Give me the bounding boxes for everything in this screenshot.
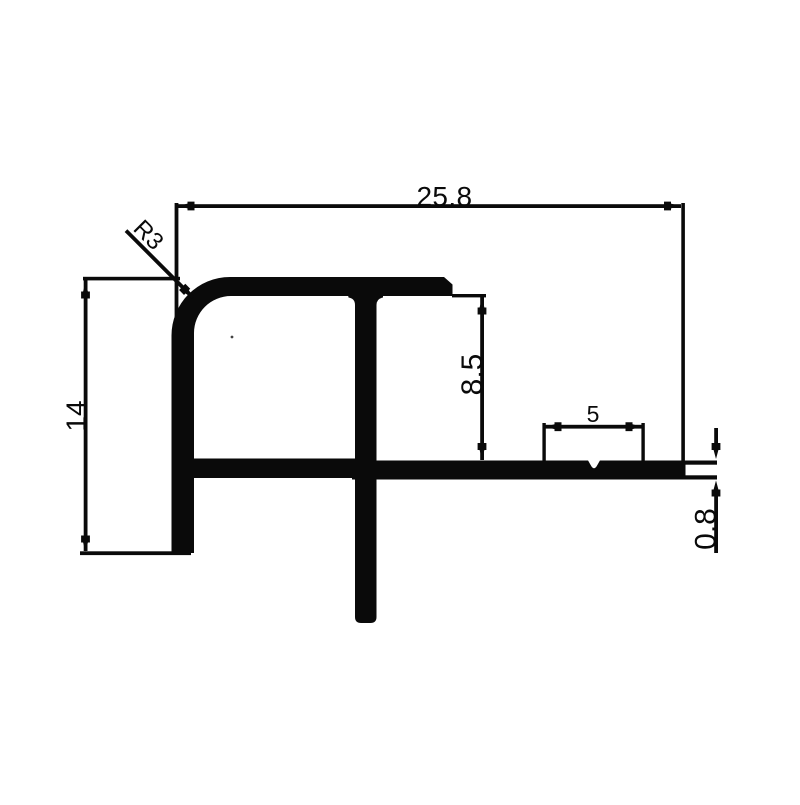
svg-text:5: 5	[587, 401, 600, 427]
svg-text:14: 14	[61, 400, 92, 431]
svg-text:0.8: 0.8	[690, 508, 723, 550]
svg-text:8.5: 8.5	[456, 354, 489, 396]
svg-text:25.8: 25.8	[416, 181, 472, 212]
